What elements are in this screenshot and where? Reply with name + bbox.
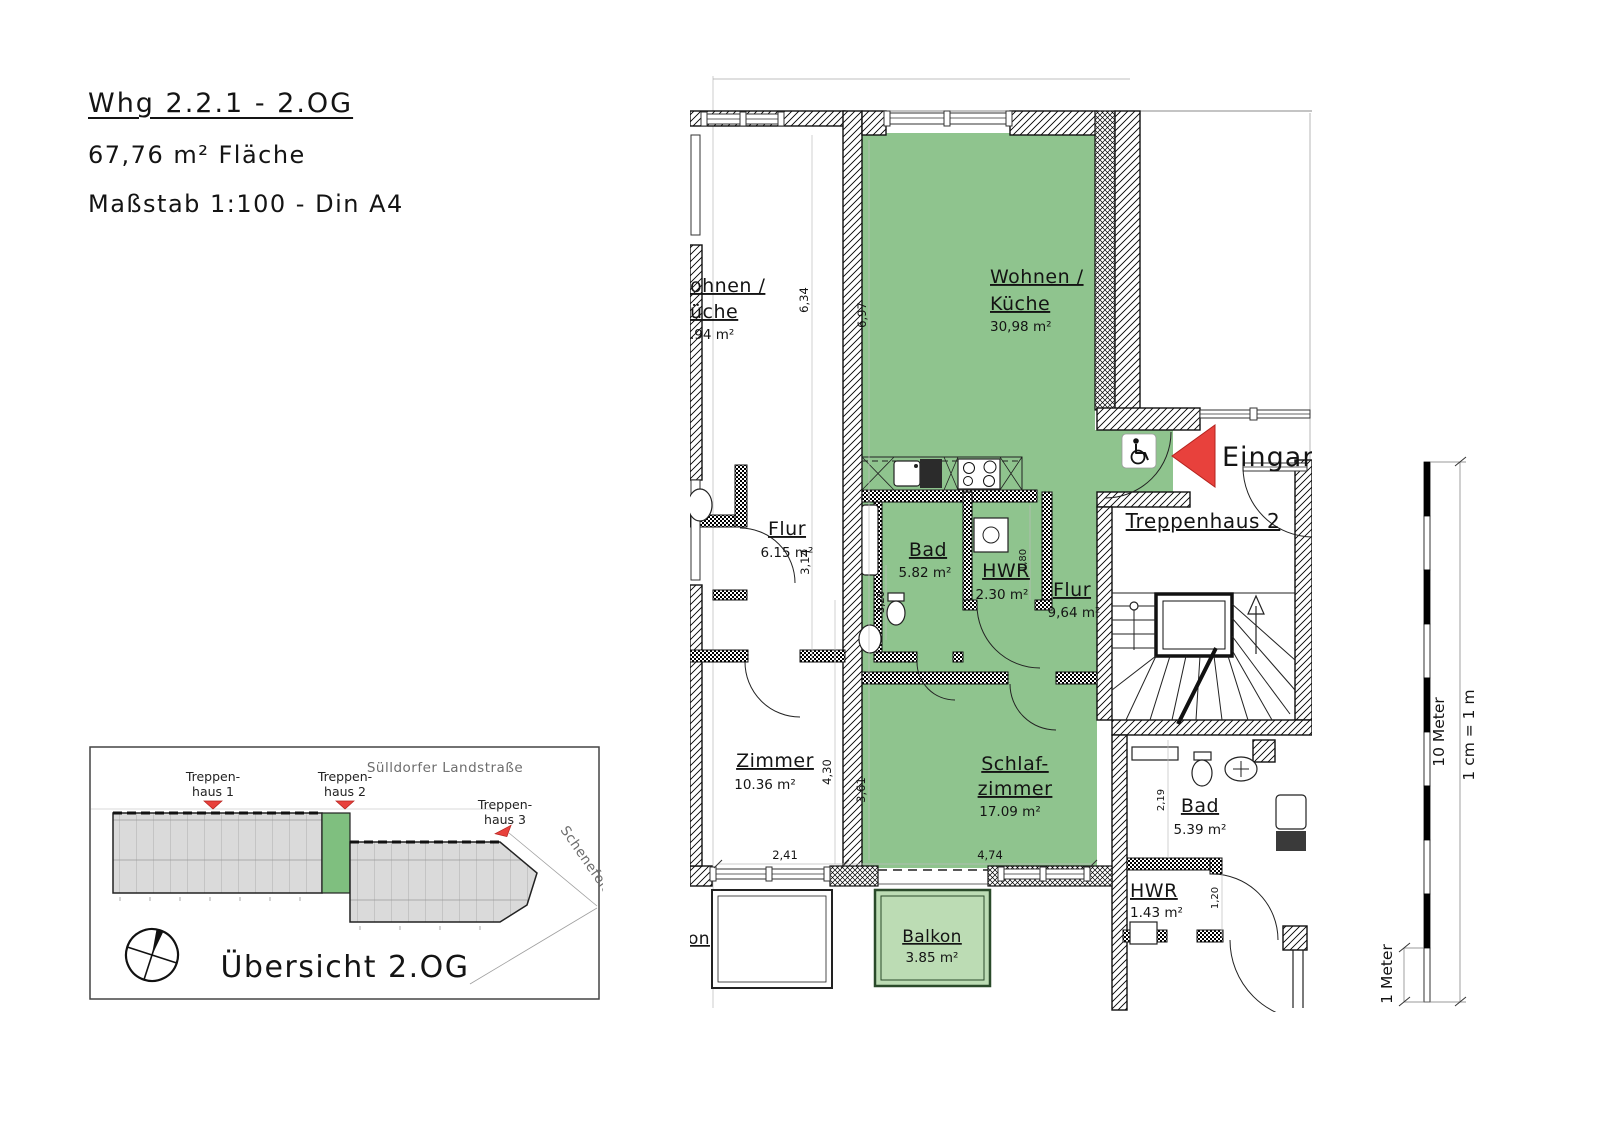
- room-flur: Flur: [1053, 579, 1091, 601]
- svg-text:9,64 m²: 9,64 m²: [1048, 605, 1101, 621]
- svg-text:4,30: 4,30: [820, 759, 834, 785]
- title-block: Whg 2.2.1 - 2.OG 67,76 m² Fläche Maßstab…: [88, 88, 404, 218]
- bathtub: [862, 505, 878, 575]
- svg-text:Treppen-: Treppen-: [185, 769, 240, 784]
- basin: [859, 625, 881, 653]
- room-nb-balkon: on: [690, 929, 710, 949]
- main-floorplan: Eingang Wohnen / Küche 30,98 m² ohnen / …: [690, 72, 1312, 1012]
- svg-text:5.82 m²: 5.82 m²: [899, 565, 952, 581]
- room-balkon: Balkon: [902, 927, 962, 947]
- room-schlaf: Schlaf-: [981, 753, 1048, 775]
- wheelchair-icon: [1122, 434, 1156, 468]
- apartment-title: Whg 2.2.1 - 2.OG: [88, 88, 404, 119]
- svg-text:17.09 m²: 17.09 m²: [979, 804, 1041, 820]
- room-wohnen: Wohnen /: [990, 266, 1084, 288]
- svg-text:3,14: 3,14: [798, 549, 812, 575]
- svg-text:üche: üche: [690, 301, 738, 323]
- balcony-door-wohnung: [878, 870, 988, 884]
- svg-text:3.85 m²: 3.85 m²: [906, 950, 959, 966]
- entrance-arrow-icon: [1172, 425, 1215, 487]
- hwr2-machine: [1130, 922, 1157, 944]
- highlighted-unit: [322, 813, 350, 893]
- svg-text:10.36 m²: 10.36 m²: [734, 777, 796, 793]
- room-treppenhaus2: Treppenhaus 2: [1125, 509, 1281, 533]
- svg-text:3,20: 3,20: [876, 591, 887, 613]
- hwr-machine: [974, 518, 1008, 552]
- svg-text:zimmer: zimmer: [978, 778, 1053, 800]
- svg-text:5.39 m²: 5.39 m²: [1174, 822, 1227, 838]
- kitchen-appliance: [920, 459, 942, 488]
- shower: [1276, 795, 1306, 829]
- svg-text:Küche: Küche: [990, 293, 1050, 315]
- svg-text:2,19: 2,19: [1156, 789, 1167, 811]
- room-bad: Bad: [909, 539, 947, 561]
- svg-text:2.30 m²: 2.30 m²: [976, 587, 1029, 603]
- svg-text:haus 1: haus 1: [192, 784, 234, 799]
- svg-text:6,97: 6,97: [855, 302, 869, 328]
- svg-text:Treppen-: Treppen-: [477, 797, 532, 812]
- svg-text:3,61: 3,61: [854, 777, 868, 803]
- window-top-left: [701, 112, 784, 126]
- balcony-neighbor: [712, 890, 832, 988]
- window-bottom-left: [710, 867, 830, 881]
- stairwell: [1112, 593, 1295, 724]
- room-nb-zimmer: Zimmer: [736, 750, 814, 772]
- svg-text:2,41: 2,41: [772, 848, 798, 862]
- wing-right: [350, 842, 537, 922]
- nb-basin: [690, 489, 712, 521]
- scale-meter-label: 1 Meter: [1378, 944, 1396, 1004]
- svg-text:1,80: 1,80: [1018, 549, 1029, 571]
- svg-text:4,74: 4,74: [977, 848, 1003, 862]
- scale-equiv-label: 1 cm = 1 m: [1460, 689, 1478, 780]
- area-line: 67,76 m² Fläche: [88, 141, 404, 169]
- room-nb-flur: Flur: [768, 518, 806, 540]
- svg-text:haus 2: haus 2: [324, 784, 366, 799]
- scale-line: Maßstab 1:100 - Din A4: [88, 190, 404, 218]
- room-bad2: Bad: [1181, 795, 1219, 817]
- svg-text:Treppen-: Treppen-: [317, 769, 372, 784]
- window-wohnen: [884, 111, 1012, 126]
- toilet-2: [1192, 760, 1212, 786]
- room-hwr2: HWR: [1130, 880, 1178, 902]
- overview-inset: Sülldorfer Landstraße Schenefelder Lands…: [88, 733, 603, 1005]
- svg-text:.94 m²: .94 m²: [690, 327, 734, 343]
- svg-text:haus 3: haus 3: [484, 812, 526, 827]
- scale-total-label: 10 Meter: [1430, 697, 1448, 767]
- svg-text:1,20: 1,20: [1210, 887, 1221, 909]
- window-entrance-side: [1200, 408, 1310, 420]
- street-top-label: Sülldorfer Landstraße: [367, 760, 523, 776]
- room-nb-wohnen: ohnen /: [690, 275, 765, 297]
- overview-title: Übersicht 2.OG: [220, 949, 469, 985]
- toilet: [887, 601, 905, 625]
- floorplan-sheet: Whg 2.2.1 - 2.OG 67,76 m² Fläche Maßstab…: [0, 0, 1600, 1131]
- svg-text:30,98 m²: 30,98 m²: [990, 319, 1052, 335]
- svg-text:1.43 m²: 1.43 m²: [1130, 905, 1183, 921]
- window-left-edge-1: [691, 135, 700, 235]
- shower-dark: [1276, 831, 1306, 851]
- scale-bar: 10 Meter 1 cm = 1 m 1 Meter: [1340, 430, 1510, 1030]
- wing-left: [113, 813, 322, 893]
- svg-text:6,34: 6,34: [797, 287, 811, 313]
- window-bottom-right: [998, 867, 1090, 881]
- entrance-label: Eingang: [1222, 442, 1312, 473]
